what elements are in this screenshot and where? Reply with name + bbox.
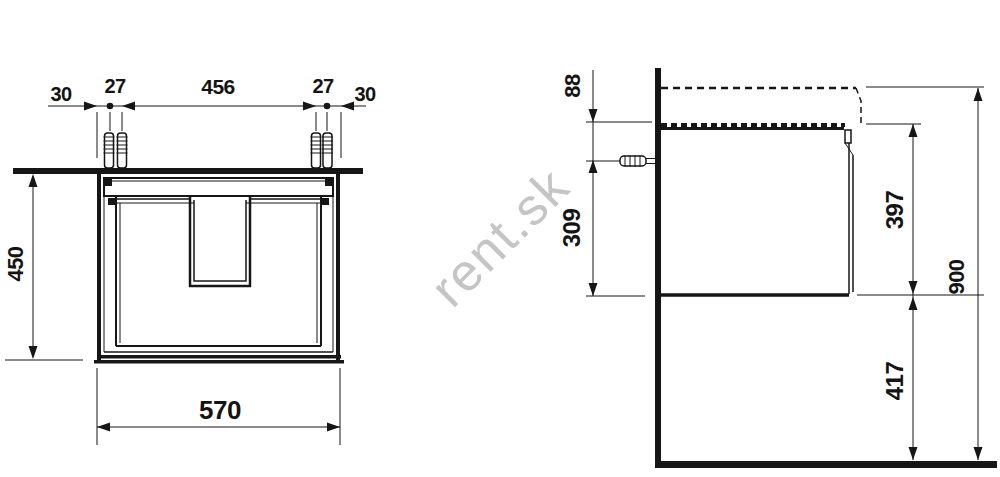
left-runner-bracket [108, 198, 115, 205]
dim-label-side-height: 397 [881, 191, 909, 230]
mounting-dowel-icon [322, 133, 333, 168]
dim-label-screw-to-bottom: 309 [558, 209, 586, 248]
floor-line [655, 461, 997, 468]
dim-label-front-height: 450 [3, 246, 29, 281]
mounting-dowel-icon [117, 133, 128, 168]
countertop [13, 168, 363, 174]
front-panel-clip [845, 130, 851, 143]
wall-screw-icon [586, 156, 660, 167]
dim-88-309 [586, 70, 652, 296]
dim-label-front-width: 570 [199, 395, 241, 426]
siphon-cutout-inner [194, 200, 246, 281]
dim-label-right-screw-gap: 27 [312, 75, 333, 98]
dim-label-top-to-screw: 88 [560, 74, 586, 97]
mounting-dowel-icon [311, 133, 322, 168]
side-view [586, 68, 997, 468]
siphon-cutout-outer [190, 197, 250, 286]
front-view [5, 102, 366, 446]
drawing-linework [0, 0, 1000, 477]
washbasin-dashed-edge [856, 88, 861, 124]
dim-label-left-offset: 30 [50, 83, 71, 106]
technical-drawing: rent.sk [0, 0, 1000, 477]
mounting-dowel-icon [104, 133, 115, 168]
dim-label-left-screw-gap: 27 [104, 75, 125, 98]
right-runner-bracket [322, 198, 329, 205]
dim-label-right-offset: 30 [354, 83, 375, 106]
dim-label-floor-clearance: 417 [881, 362, 909, 401]
dim-label-total-height: 900 [944, 259, 970, 294]
wall-line [655, 68, 661, 468]
dim-label-screw-span: 456 [201, 75, 235, 99]
